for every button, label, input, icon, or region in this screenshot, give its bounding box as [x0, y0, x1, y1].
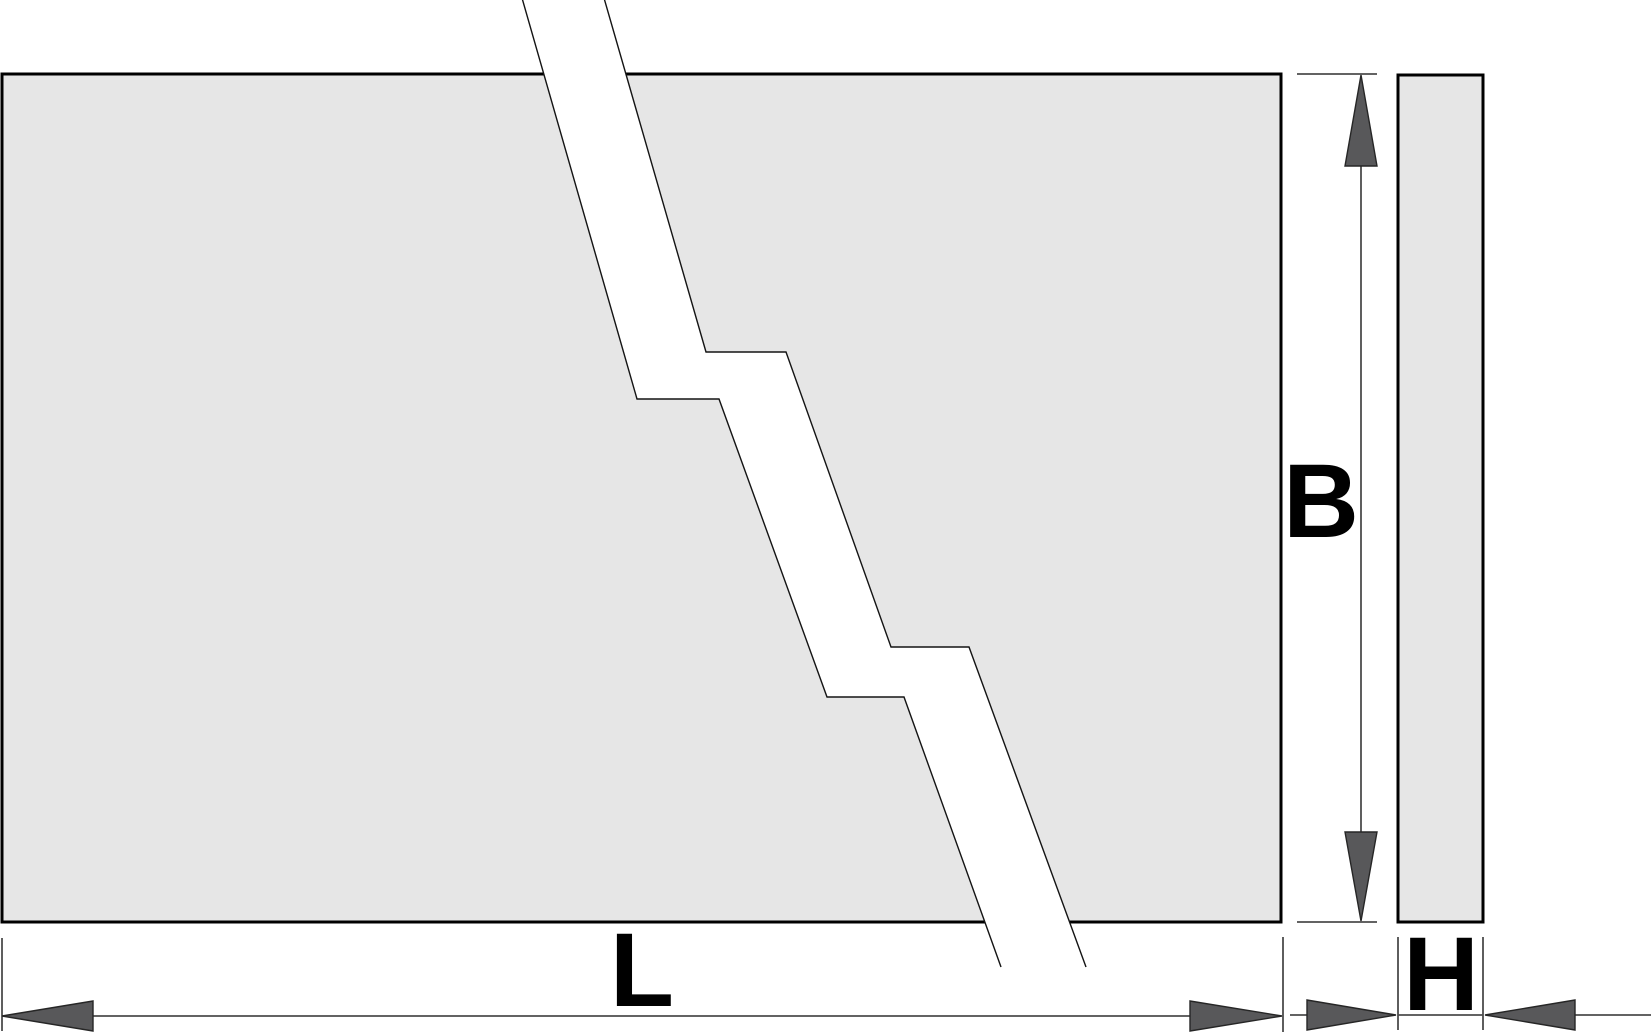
breadth-label: B — [1283, 443, 1359, 560]
arrow-left-icon — [2, 1001, 93, 1031]
breadth-dimension: B — [1283, 74, 1377, 922]
arrow-left-icon — [1485, 1000, 1575, 1030]
arrow-right-icon — [1190, 1001, 1282, 1031]
arrow-up-icon — [1345, 75, 1377, 166]
arrow-down-icon — [1345, 832, 1377, 921]
arrow-right-icon — [1307, 1000, 1396, 1030]
length-label: L — [610, 912, 674, 1029]
height-dimension: H — [1290, 916, 1651, 1032]
technical-drawing-canvas: B L H — [0, 0, 1651, 1032]
plate-side-view — [1398, 75, 1483, 922]
height-label: H — [1403, 916, 1479, 1032]
length-dimension: L — [2, 912, 1283, 1032]
plate-dimension-diagram: B L H — [0, 0, 1651, 1032]
